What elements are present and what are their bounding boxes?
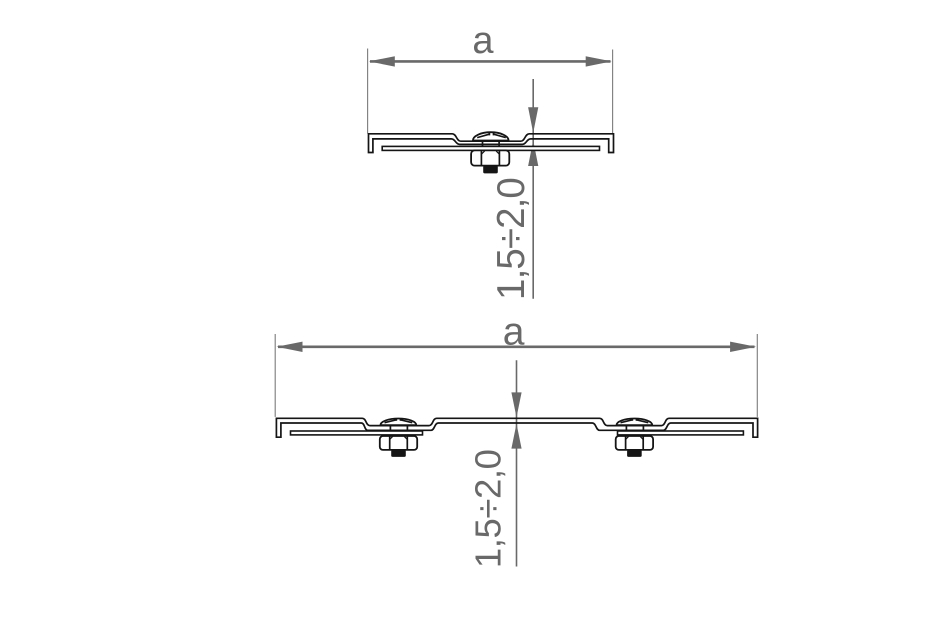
svg-text:a: a: [472, 20, 494, 62]
svg-text:1,5÷2,0: 1,5÷2,0: [490, 178, 533, 300]
svg-text:1,5÷2,0: 1,5÷2,0: [468, 449, 509, 568]
svg-text:a: a: [503, 311, 525, 354]
